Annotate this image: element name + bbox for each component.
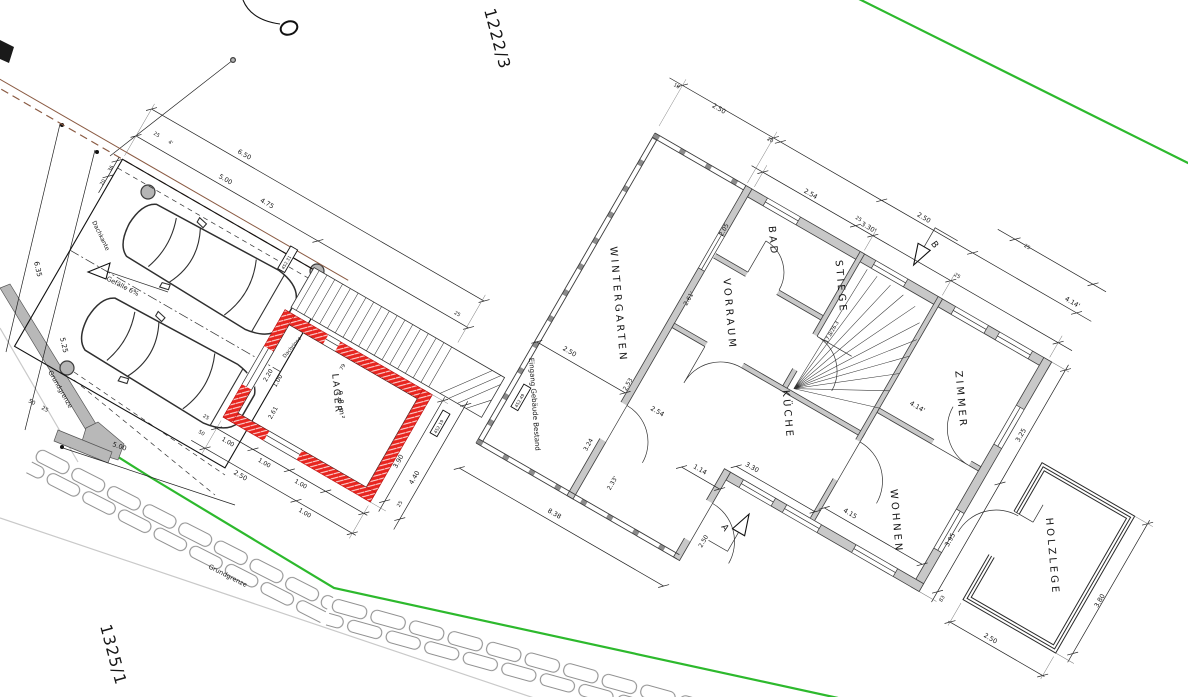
dim-label: 4.40 (407, 469, 421, 486)
room-label-vorraum: VORRAUM (720, 278, 737, 351)
dim-label: 3.30' (859, 220, 877, 235)
room-label-wohnen: WOHNEN (887, 489, 904, 554)
dim-label: 2.50 (561, 344, 578, 358)
dim-label: 4.15 (842, 506, 859, 520)
dim-label: 25 (953, 272, 962, 280)
dim-label: 2.50 (697, 534, 710, 549)
stone-wall (25, 444, 831, 697)
roof-edge-label: Dachkante (90, 220, 111, 252)
dim-label: 3.25 (1014, 427, 1028, 444)
dim-label: 2.50 (982, 631, 999, 645)
doors (577, 218, 1015, 643)
terrain-line (0, 518, 540, 697)
dim-label: 3.80 (1093, 593, 1107, 610)
dim-label: 83 (938, 595, 946, 604)
dim-label: 4.14' (1063, 295, 1081, 310)
dim-label: 2.54 (802, 187, 819, 201)
room-label-holzlege: HOLZLEGE (1043, 517, 1061, 595)
lager-area-label: 9.8 m² (336, 390, 346, 420)
dim-label: 2.54 (649, 404, 666, 418)
edge-structure (0, 40, 14, 63)
dim-label: 25 (1023, 243, 1032, 251)
dim-label: 25 (152, 131, 161, 139)
dim-label: 2.50 (916, 211, 933, 225)
dim-label: 8.38 (546, 507, 563, 521)
dim-label: 25 (40, 405, 49, 414)
dim-label: 1.00 (272, 373, 285, 388)
site-plan-canvas: WINTERGARTEN BAD VORRAUM STIEGE ZIMMER K… (0, 0, 1188, 697)
slope-label: Gefälle 6% (105, 275, 140, 298)
holzlege-building (930, 444, 1135, 653)
dim-label: 2.61 (267, 405, 280, 420)
room-label-wintergarten: WINTERGARTEN (607, 246, 628, 363)
dim-label: 25 (453, 310, 462, 318)
wall-east (911, 358, 1051, 592)
dim-label: 50 (197, 429, 206, 437)
dim-label: 2.50 (232, 469, 249, 483)
boundary-line-north (857, 0, 1188, 164)
dim-label: 50 (27, 398, 36, 407)
room-label-zimmer: ZIMMER (952, 370, 968, 429)
dim-label: 4' (167, 139, 174, 146)
dim-label: 79 (339, 363, 347, 372)
dim-label: 2.50 (711, 102, 728, 116)
room-label-bad: BAD (766, 226, 780, 257)
wintergarten-glazing (476, 133, 856, 559)
dim-label: 2.33' (606, 475, 620, 492)
site-plan-drawing: WINTERGARTEN BAD VORRAUM STIEGE ZIMMER K… (0, 0, 1188, 697)
entrance-label: Eingang Gebäude Bestand (527, 358, 541, 452)
rotated-plan-group: WINTERGARTEN BAD VORRAUM STIEGE ZIMMER K… (0, 0, 1188, 697)
stair-note: 17.8/26.3 (824, 320, 841, 344)
dim-label: 5.25 (58, 337, 69, 354)
gutter-label: Dachrinne (282, 336, 303, 360)
parcel-number-lower: 1325/1 (96, 622, 130, 687)
north-point-symbol (243, 0, 299, 37)
dim-label: 4.14' (908, 399, 926, 414)
dim-label: 25 (396, 500, 404, 509)
parcel-number-upper: 1222/3 (480, 6, 514, 71)
section-b-label: B (928, 240, 940, 251)
dim-label: 6.35 (32, 261, 43, 278)
section-a-label: A (719, 523, 731, 534)
